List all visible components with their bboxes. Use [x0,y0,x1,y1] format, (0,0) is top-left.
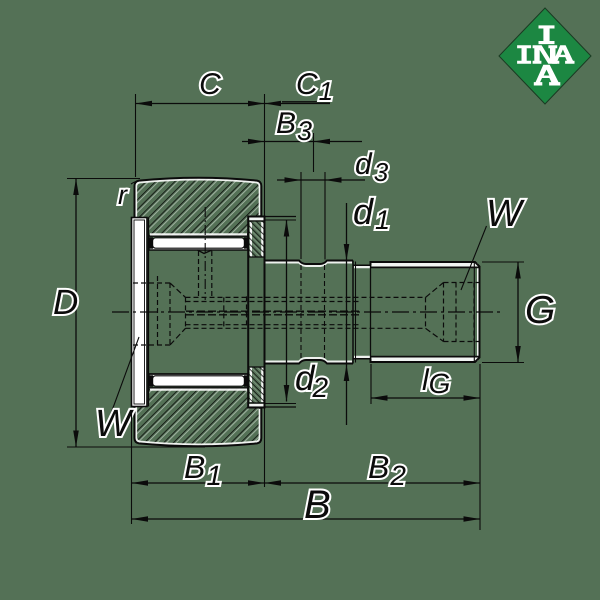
svg-text:D: D [53,283,78,322]
svg-text:W: W [95,403,134,445]
svg-text:W: W [486,193,525,235]
svg-text:C: C [199,68,221,101]
svg-text:G: G [525,289,555,332]
svg-text:r: r [118,180,128,210]
svg-text:lG: lG [422,364,450,399]
svg-text:B: B [304,483,331,527]
